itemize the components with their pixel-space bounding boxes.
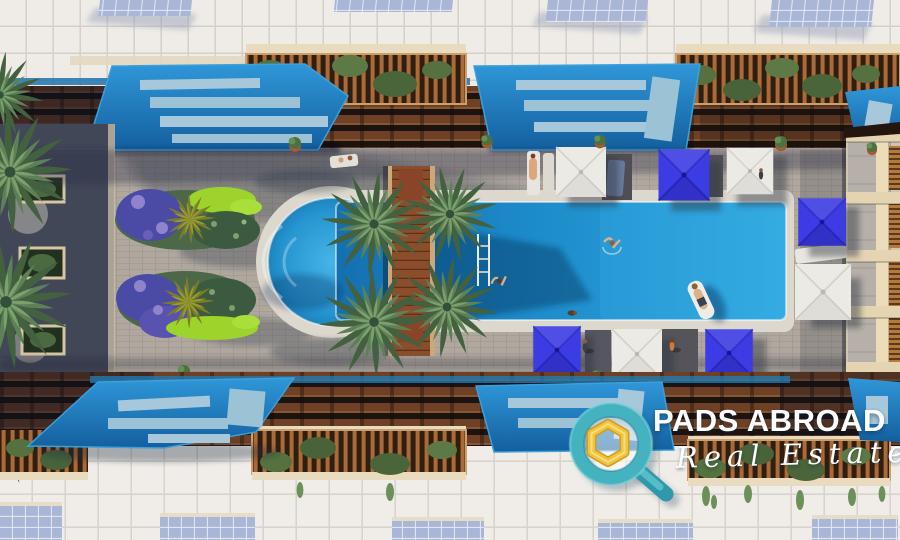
blue-umbrella (533, 326, 581, 374)
resort-aerial-render: PADS ABROAD Real Estate (0, 0, 900, 540)
watermark-tagline-text: Real Estate (676, 437, 887, 474)
blue-umbrella (705, 329, 753, 377)
balcony-railing-bottom-middle (252, 426, 466, 480)
blue-umbrella (798, 198, 846, 246)
blue-umbrella (659, 150, 710, 201)
swimmer (568, 310, 578, 315)
white-umbrella (795, 264, 851, 320)
watermark-brand-text: PADS ABROAD (653, 405, 893, 436)
white-umbrella (612, 329, 662, 379)
white-umbrella (727, 148, 774, 195)
garden-bed-north (115, 187, 262, 250)
white-umbrella (556, 147, 606, 197)
